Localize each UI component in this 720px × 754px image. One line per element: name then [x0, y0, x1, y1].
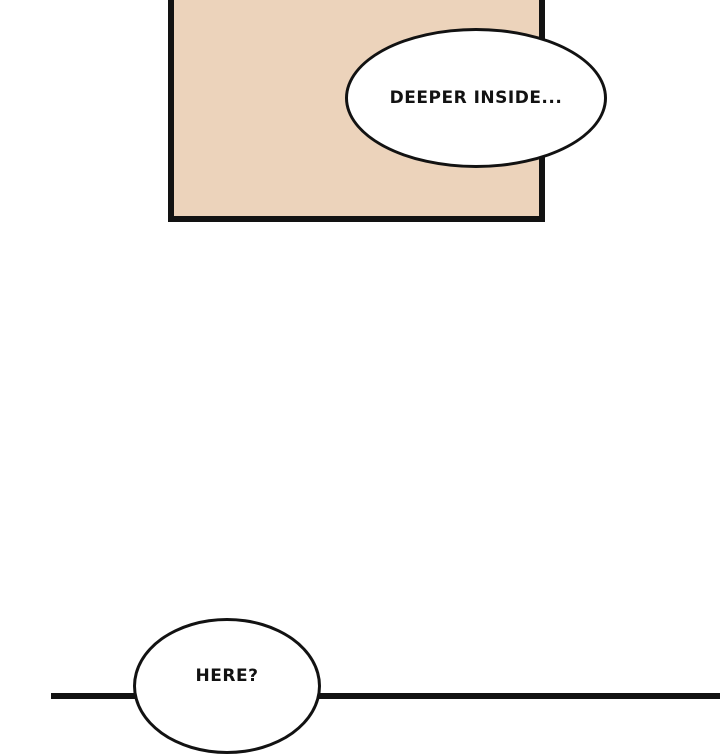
speech-bubble-text: HERE? [196, 666, 259, 686]
speech-bubble-here: HERE? [133, 618, 321, 754]
speech-bubble-deeper-inside: DEEPER INSIDE... [345, 28, 607, 168]
speech-bubble-text: DEEPER INSIDE... [390, 88, 563, 108]
comic-page: DEEPER INSIDE... HERE? [0, 0, 720, 700]
